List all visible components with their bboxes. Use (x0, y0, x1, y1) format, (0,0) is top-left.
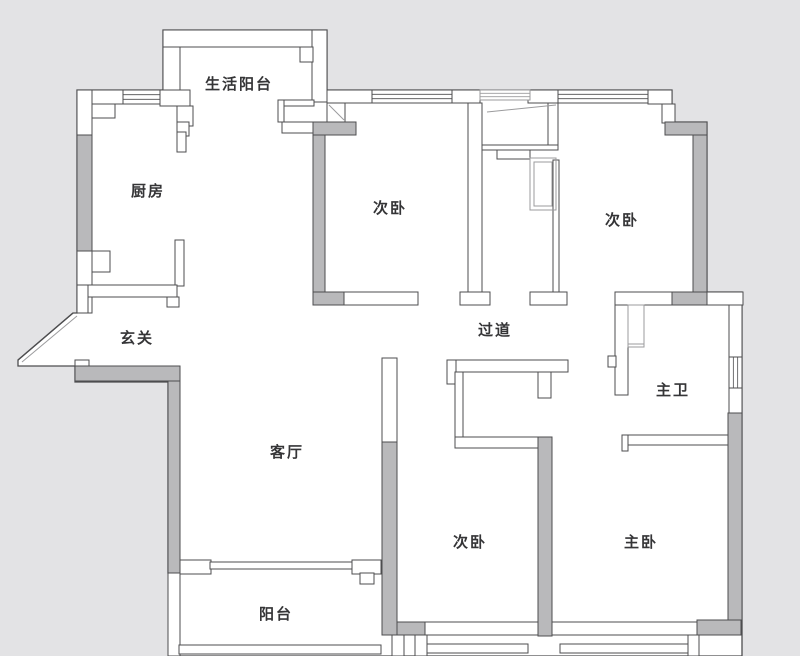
room-label-bedroom-2a: 次卧 (373, 199, 407, 217)
bedroom2-se-bar-fill (672, 292, 707, 305)
bay-rail-2 (560, 644, 688, 653)
utility-balcony-north-wall (163, 30, 327, 47)
living-bedroom3-wall-fill (382, 442, 397, 635)
utility-balcony-east-wall (312, 30, 327, 102)
kitchen-south-leg-east (167, 297, 179, 307)
bedroom3-south-wall (425, 622, 538, 635)
top-wall-pillar-1 (450, 90, 480, 103)
room-label-master-bedroom: 主卧 (624, 533, 658, 551)
bedroom1-nw-bar-fill (313, 122, 356, 135)
bedroom2-window (558, 90, 648, 103)
room-label-kitchen: 厨房 (131, 182, 165, 200)
bath-west-wall (615, 305, 628, 395)
master-south-wall (552, 622, 698, 635)
kitchen-west-wall-fill (77, 135, 92, 251)
bedroom2-ne-bar-fill (665, 122, 707, 135)
niche-east-wall (548, 103, 558, 148)
room-label-bedroom-2b: 次卧 (605, 211, 639, 229)
closet-south-bar (455, 437, 541, 448)
bath-west-notch (608, 356, 616, 367)
bath-south-stub (622, 435, 628, 451)
balcony-door-wall-east (352, 560, 381, 574)
bath-south-wall (622, 435, 731, 445)
living-bedroom-wall-top (382, 358, 397, 442)
room-label-utility-balcony: 生活阳台 (205, 75, 273, 93)
room-label-entry: 玄关 (120, 329, 154, 347)
living-west-wall-fill (168, 381, 180, 573)
bath-north-wall-west (615, 292, 673, 305)
balcony-sliding-door (210, 562, 352, 569)
bay-post-2 (415, 635, 427, 656)
bedroom1-sw-bar-fill (313, 292, 344, 305)
bath-north-wall-east (707, 292, 743, 305)
niche-window (480, 90, 530, 100)
kitchen-pillar-top (92, 104, 115, 118)
kitchen-east-wall-upper (177, 132, 186, 152)
kitchen-south-leg-west (77, 285, 88, 313)
bedroom-divider-base (460, 292, 490, 305)
closet-north-bar (447, 360, 568, 372)
room-label-living-room: 客厅 (269, 443, 304, 461)
bay-post-1 (392, 635, 404, 656)
utility-balcony-south-stub (278, 100, 284, 122)
bath-east-wall-upper (729, 305, 742, 357)
top-wall-pillar-2 (528, 90, 558, 103)
kitchen-window (123, 90, 160, 104)
floorplan-page: 生活阳台厨房次卧次卧玄关过道主卫客厅次卧主卧阳台 (0, 0, 800, 656)
kitchen-south-bar (87, 285, 177, 297)
bay-rail-1 (427, 644, 528, 653)
bay-post-3 (688, 635, 699, 656)
ne-corner-step (662, 104, 675, 123)
room-label-balcony: 阳台 (259, 605, 293, 623)
bedroom2-door-base (530, 292, 567, 305)
closet-west-wall (455, 372, 463, 444)
top-wall-ne-corner (648, 90, 672, 104)
kitchen-pillar-bottom (92, 251, 110, 272)
balcony-south-rail (179, 645, 381, 654)
niche-south-line (482, 145, 558, 150)
kitchen-north-corner (160, 90, 190, 106)
kitchen-east-wall-lower (175, 240, 184, 286)
bedroom-divider-wall (468, 103, 482, 292)
bedroom2-east-wall-fill (693, 135, 707, 293)
master-east-wall-fill (728, 413, 742, 620)
bedroom1-south-wall (343, 292, 418, 305)
bedroom1-west-wall-fill (313, 122, 325, 292)
bath-window (729, 357, 742, 388)
room-label-bedroom-2c: 次卧 (453, 533, 487, 551)
bedroom3-master-wall-fill (538, 437, 552, 636)
balcony-west-wall (168, 573, 180, 656)
bedroom1-north-ledge (282, 122, 313, 133)
closet-ne-stub (538, 372, 551, 398)
entry-south-wall-fill (75, 366, 180, 381)
balcony-door-step (360, 573, 374, 584)
bath-east-wall-lower (729, 388, 742, 414)
utility-balcony-step (300, 47, 313, 62)
floorplan-svg: 生活阳台厨房次卧次卧玄关过道主卫客厅次卧主卧阳台 (0, 0, 800, 656)
bedroom1-window (372, 90, 452, 103)
kitchen-west-wall-top (77, 90, 92, 137)
niche-sill (497, 150, 530, 159)
bedroom3-sw-bar-fill (397, 622, 425, 635)
master-se-corner-fill (697, 620, 741, 635)
top-wall-segment-1 (327, 90, 372, 103)
room-label-corridor: 过道 (478, 321, 512, 339)
room-label-master-bath: 主卫 (656, 381, 690, 399)
balcony-door-wall-west (180, 560, 211, 574)
